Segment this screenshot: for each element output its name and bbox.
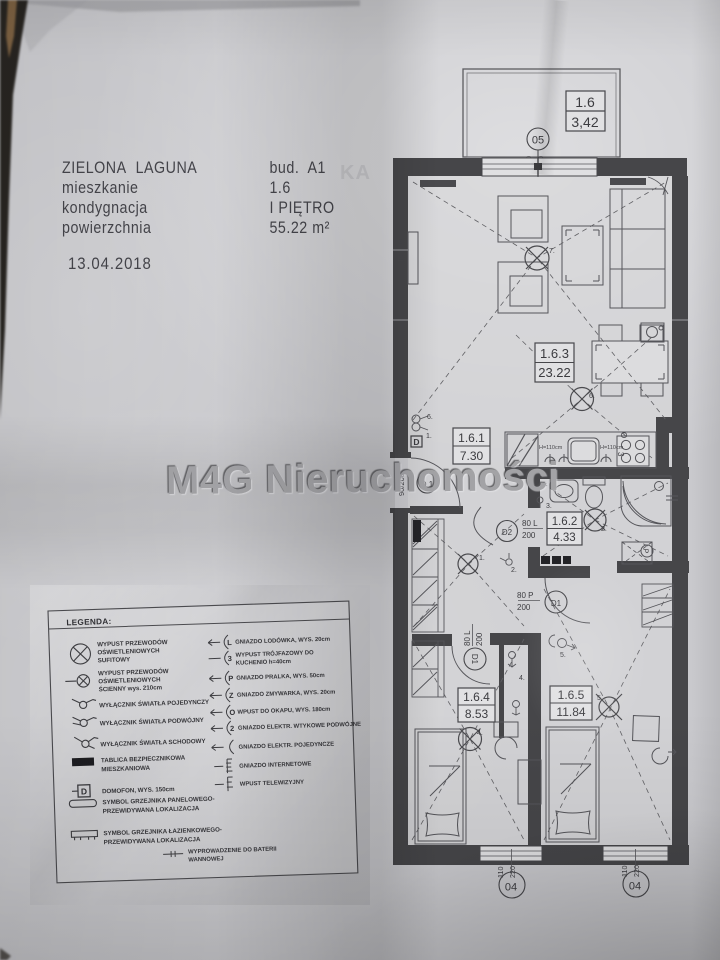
svg-text:200: 200 xyxy=(522,531,536,540)
svg-text:05: 05 xyxy=(532,135,544,147)
svg-text:D2: D2 xyxy=(502,528,513,537)
svg-text:D1: D1 xyxy=(470,654,479,665)
svg-text:11.84: 11.84 xyxy=(556,705,585,719)
svg-text:2.: 2. xyxy=(511,567,517,574)
svg-text:23.22: 23.22 xyxy=(538,365,571,380)
svg-text:80 P: 80 P xyxy=(517,591,533,600)
svg-text:04: 04 xyxy=(629,881,641,893)
svg-text:5.: 5. xyxy=(597,695,603,702)
svg-text:3: 3 xyxy=(228,654,232,663)
svg-text:80 L: 80 L xyxy=(522,519,538,528)
svg-text:1.: 1. xyxy=(426,433,432,440)
svg-text:TV: TV xyxy=(399,254,405,262)
svg-text:80 L: 80 L xyxy=(463,630,472,646)
svg-text:1.6.1: 1.6.1 xyxy=(458,431,485,445)
svg-text:1.: 1. xyxy=(479,555,485,562)
svg-text:7.: 7. xyxy=(549,248,555,255)
svg-text:1.6.4: 1.6.4 xyxy=(463,690,490,704)
svg-text:H=110cm: H=110cm xyxy=(600,445,624,451)
svg-text:O: O xyxy=(619,432,628,438)
svg-text:P: P xyxy=(642,549,649,554)
svg-text:4.: 4. xyxy=(519,675,525,682)
svg-text:200: 200 xyxy=(517,603,531,612)
svg-text:2.: 2. xyxy=(601,526,607,533)
svg-text:LEGENDA:: LEGENDA: xyxy=(66,617,111,627)
svg-text:8.53: 8.53 xyxy=(465,707,489,721)
svg-text:1.6.3: 1.6.3 xyxy=(540,346,569,361)
svg-text:WANNOWEJ: WANNOWEJ xyxy=(188,856,224,863)
svg-text:H=110cm: H=110cm xyxy=(539,445,563,451)
svg-text:5.: 5. xyxy=(560,652,566,659)
svg-text:6.: 6. xyxy=(427,414,433,421)
svg-text:200: 200 xyxy=(475,632,484,646)
svg-text:1.6: 1.6 xyxy=(575,94,595,110)
svg-text:D: D xyxy=(81,786,87,796)
svg-text:D: D xyxy=(413,437,419,447)
svg-text:3,42: 3,42 xyxy=(571,114,598,130)
svg-text:3: 3 xyxy=(616,452,625,457)
svg-text:1.6.5: 1.6.5 xyxy=(558,688,585,702)
svg-text:04: 04 xyxy=(505,882,517,894)
svg-text:1.6.2: 1.6.2 xyxy=(552,516,578,528)
svg-text:P: P xyxy=(228,674,233,683)
svg-text:Z: Z xyxy=(229,691,234,700)
svg-text:2: 2 xyxy=(230,724,234,733)
svg-text:4.33: 4.33 xyxy=(553,532,575,544)
svg-text:SUFITOWY: SUFITOWY xyxy=(98,656,132,664)
svg-text:110: 110 xyxy=(620,866,629,877)
svg-text:4.: 4. xyxy=(477,730,483,737)
svg-text:110: 110 xyxy=(496,867,505,878)
svg-text:3.: 3. xyxy=(546,503,552,510)
svg-text:L: L xyxy=(227,638,232,647)
svg-text:O: O xyxy=(229,708,235,717)
svg-text:D1: D1 xyxy=(551,599,562,608)
svg-text:6.: 6. xyxy=(589,393,595,400)
svg-text:INT: INT xyxy=(399,236,405,244)
